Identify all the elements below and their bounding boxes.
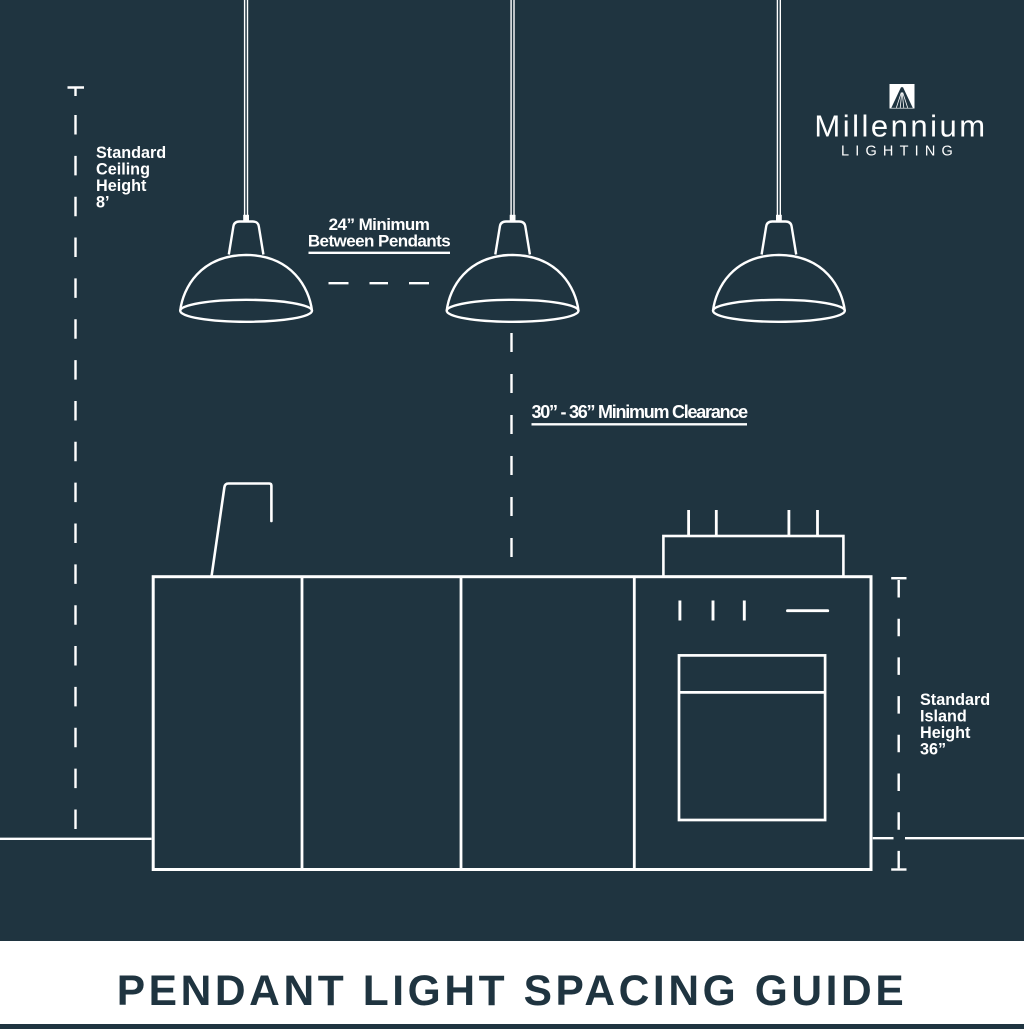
- svg-text:Millennium: Millennium: [814, 109, 987, 144]
- svg-text:8’: 8’: [96, 194, 110, 212]
- svg-text:Standard: Standard: [96, 144, 166, 162]
- svg-text:PENDANT LIGHT SPACING GUIDE: PENDANT LIGHT SPACING GUIDE: [117, 968, 908, 1015]
- svg-text:30” - 36” Minimum Clearance: 30” - 36” Minimum Clearance: [532, 402, 749, 422]
- svg-text:Island: Island: [920, 708, 967, 726]
- svg-text:36”: 36”: [920, 741, 946, 759]
- svg-text:Ceiling: Ceiling: [96, 161, 150, 179]
- svg-text:Standard: Standard: [920, 691, 990, 709]
- svg-text:LIGHTING: LIGHTING: [841, 144, 959, 160]
- svg-text:Height: Height: [96, 177, 147, 195]
- svg-text:Between Pendants: Between Pendants: [308, 232, 450, 251]
- svg-text:Height: Height: [920, 724, 971, 742]
